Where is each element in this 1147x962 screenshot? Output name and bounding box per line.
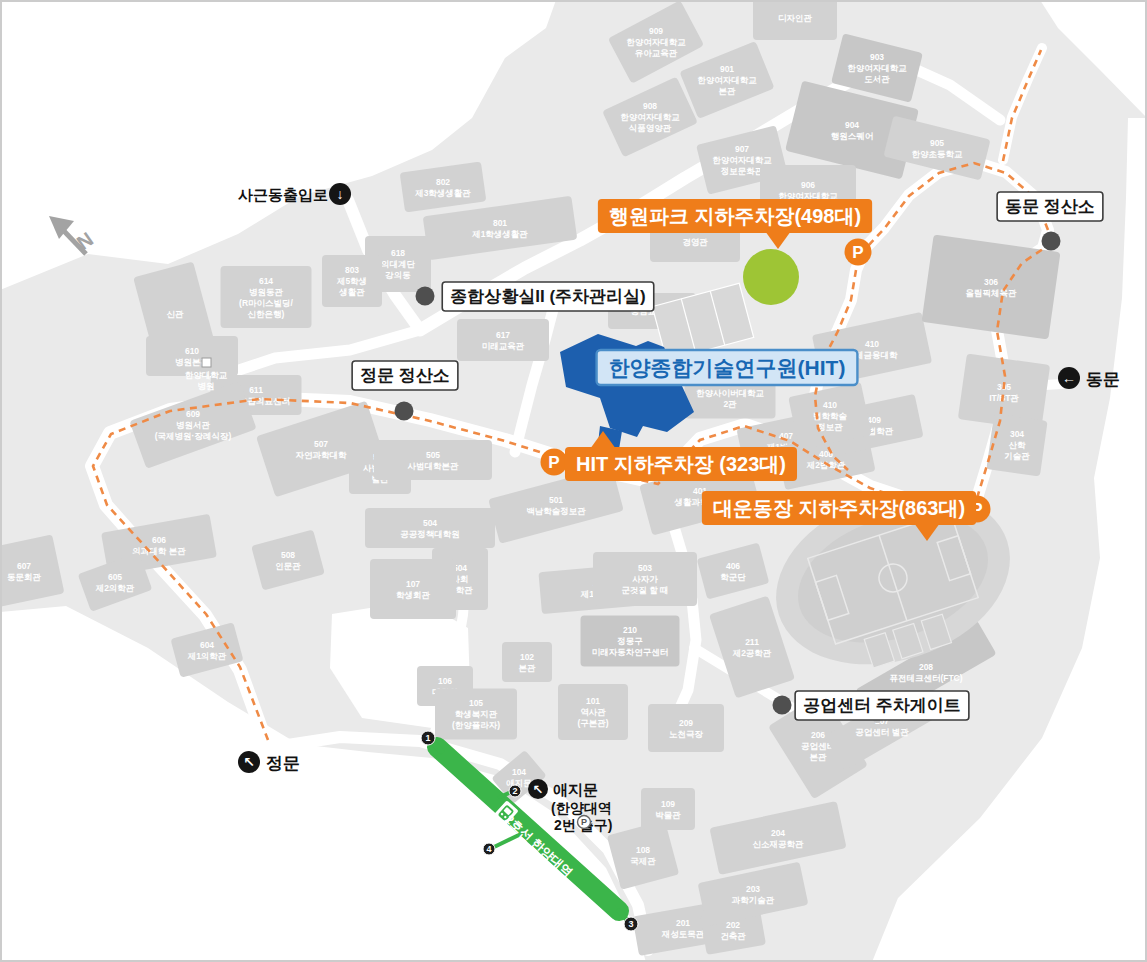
svg-text:←: ← xyxy=(1062,370,1076,386)
subway-exit-number: 4 xyxy=(486,844,491,854)
svg-text:↓: ↓ xyxy=(337,186,344,202)
gate-label: 정문 xyxy=(266,754,300,773)
tollgate-dot xyxy=(395,402,414,421)
gate-marker-1: ←동문 xyxy=(1058,367,1120,389)
building-210: 210정몽구미래자동차연구센터 xyxy=(581,616,680,667)
gate-label: 동문 xyxy=(1086,370,1120,389)
building-101: 101역사관(구본관) xyxy=(558,684,628,740)
building-label: 경영관 xyxy=(682,237,708,247)
subway-exit-3: 3 xyxy=(624,917,638,931)
building-304: 304산학기술관 xyxy=(986,414,1047,477)
hit-callout-label: 한양종합기술연구원(HIT) xyxy=(609,356,846,379)
subway-exit-number: 2 xyxy=(512,786,517,796)
gate-label: 사근동출입로 xyxy=(238,186,328,203)
parking-callout-label: 대운동장 지하주차장(863대) xyxy=(713,497,965,519)
building-109: 109박물관 xyxy=(641,788,695,830)
building-label: 102본관 xyxy=(519,652,537,673)
parking-p-icon: P xyxy=(845,239,872,266)
svg-text:↖: ↖ xyxy=(243,754,255,770)
subway-exit-number: 1 xyxy=(425,733,430,743)
info-callout-label: 종합상황실II (주차관리실) xyxy=(450,287,646,306)
aejimun-sub1: (한양대역 xyxy=(551,800,612,816)
parking-p-icon: P xyxy=(541,449,568,476)
info-callout: 종합상황실II (주차관리실) xyxy=(442,282,654,311)
building-label: 신관 xyxy=(167,309,185,319)
info-callout: 공업센터 주차게이트 xyxy=(795,691,969,720)
hospital-icon xyxy=(202,358,211,367)
building-105: 105학생복지관(한양플라자) xyxy=(435,689,517,740)
building-label: 디자인관 xyxy=(778,13,813,23)
building-디자인관: 디자인관 xyxy=(753,0,837,40)
subway-exit-2: 2 xyxy=(509,785,521,797)
info-callout-label: 정문 정산소 xyxy=(360,366,450,385)
map-container: 909한양여자대학교유아교육관901한양여자대학교본관903한양여자대학교도서관… xyxy=(0,0,1147,962)
info-callout-label: 공업센터 주차게이트 xyxy=(803,696,961,715)
gate-marker-2: ↖정문 xyxy=(238,751,300,773)
building-102: 102본관 xyxy=(502,642,552,682)
building-614: 614병원동관(R마이스빌딩/신한은행) xyxy=(221,266,312,328)
hit-callout: 한양종합기술연구원(HIT) xyxy=(597,350,858,385)
parking-callout-label: 행원파크 지하주차장(498대) xyxy=(609,205,861,227)
building-505: 505사범대학본관 xyxy=(374,440,492,480)
subway-exit-4: 4 xyxy=(483,843,495,855)
svg-text:↖: ↖ xyxy=(533,782,544,797)
tollgate-dot xyxy=(1042,232,1061,251)
info-callout: 정문 정산소 xyxy=(352,361,458,390)
info-callout-label: 동문 정산소 xyxy=(1005,197,1095,216)
tollgate-dot xyxy=(773,696,792,715)
building-107: 107학생회관 xyxy=(370,559,456,619)
campus-map-image: 909한양여자대학교유아교육관901한양여자대학교본관903한양여자대학교도서관… xyxy=(0,0,1147,962)
building-209: 209노천극장 xyxy=(648,704,724,752)
building-803: 803제5학생생활관 xyxy=(322,255,382,307)
aejimun-label: 애지문 xyxy=(553,781,598,798)
building-617: 617미래교육관 xyxy=(457,319,549,361)
hwangwon-park-circle xyxy=(743,249,799,305)
tollgate-dot xyxy=(416,287,435,306)
building-504: 504공공정책대학원 xyxy=(365,508,495,548)
svg-text:P: P xyxy=(581,817,587,827)
subway-exit-number: 3 xyxy=(628,919,633,929)
building-503: 503사자가군것질 할 때 xyxy=(593,552,697,606)
info-callout: 동문 정산소 xyxy=(997,192,1103,221)
svg-text:P: P xyxy=(852,243,863,262)
subway-exit-1: 1 xyxy=(421,731,435,745)
gate-marker-0: ↓사근동출입로 xyxy=(238,183,351,205)
svg-text:P: P xyxy=(548,453,559,472)
parking-callout-label: HIT 지하주차장 (323대) xyxy=(576,453,786,475)
